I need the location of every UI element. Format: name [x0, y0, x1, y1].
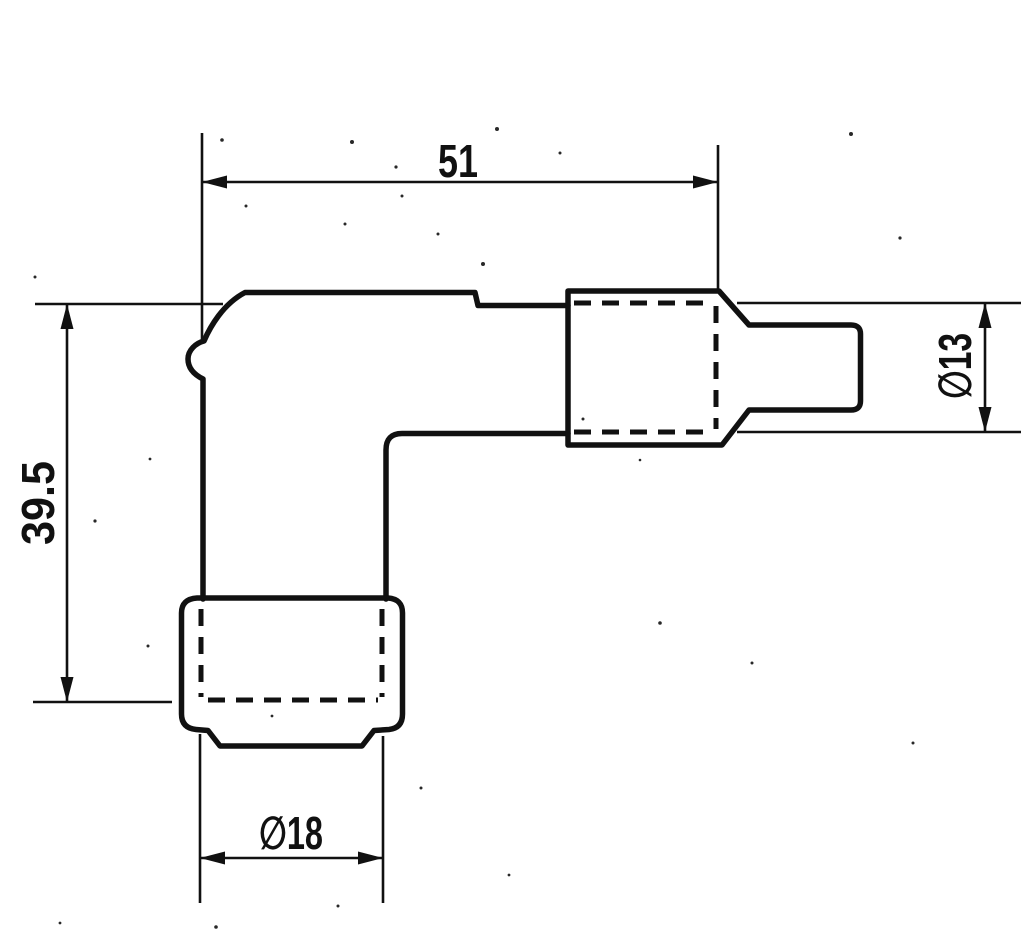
cap-elbow-body-outline — [188, 293, 568, 600]
noise-speck — [93, 519, 96, 522]
noise-speck — [271, 715, 274, 718]
dimension-dia-boot-18: ∅18 — [200, 734, 383, 903]
technical-drawing-canvas: 51 39.5 ∅13 — [0, 0, 1024, 938]
cap-boot-outline — [182, 598, 403, 746]
arrowhead-right — [693, 176, 718, 189]
noise-speck — [751, 662, 754, 665]
arrowhead-top — [979, 303, 992, 328]
dimension-label-dia-boot: ∅18 — [259, 807, 323, 859]
noise-speck — [912, 742, 915, 745]
noise-speck — [337, 905, 340, 908]
scan-noise-specks — [34, 127, 915, 929]
dimension-label-length: 51 — [438, 135, 478, 187]
dimension-label-height: 39.5 — [12, 461, 64, 545]
noise-speck — [508, 874, 511, 877]
noise-speck — [350, 140, 354, 144]
arrowhead-bottom — [979, 407, 992, 432]
noise-speck — [220, 138, 224, 142]
noise-speck — [495, 127, 499, 131]
boot-cavity-hidden-line — [201, 609, 382, 700]
noise-speck — [582, 418, 585, 421]
arrowhead-top — [61, 304, 74, 329]
noise-speck — [639, 459, 642, 462]
noise-speck — [34, 276, 37, 279]
dimension-length-51: 51 — [202, 133, 718, 343]
spark-plug-cap-dimensional-diagram: 51 39.5 ∅13 — [0, 0, 1024, 938]
noise-speck — [401, 195, 404, 198]
arrowhead-left — [200, 852, 225, 865]
terminal-cavity-hidden-line — [574, 303, 716, 432]
noise-speck — [481, 262, 485, 266]
cap-outline — [182, 291, 861, 746]
noise-speck — [437, 233, 440, 236]
noise-speck — [898, 236, 901, 239]
hidden-lines — [201, 303, 716, 700]
rotated-label-dia-terminal: ∅13 — [929, 333, 981, 399]
noise-speck — [245, 205, 248, 208]
noise-speck — [214, 925, 218, 929]
noise-speck — [420, 787, 423, 790]
rotated-label-height: 39.5 — [12, 461, 64, 545]
noise-speck — [658, 621, 662, 625]
dimension-label-dia-terminal: ∅13 — [929, 333, 981, 399]
noise-speck — [147, 645, 150, 648]
arrowhead-bottom — [61, 677, 74, 702]
arrowhead-right — [358, 852, 383, 865]
noise-speck — [149, 458, 152, 461]
noise-speck — [394, 165, 397, 168]
noise-speck — [344, 223, 347, 226]
noise-speck — [849, 132, 853, 136]
noise-speck — [59, 922, 62, 925]
noise-speck — [559, 152, 562, 155]
arrowhead-left — [202, 176, 227, 189]
